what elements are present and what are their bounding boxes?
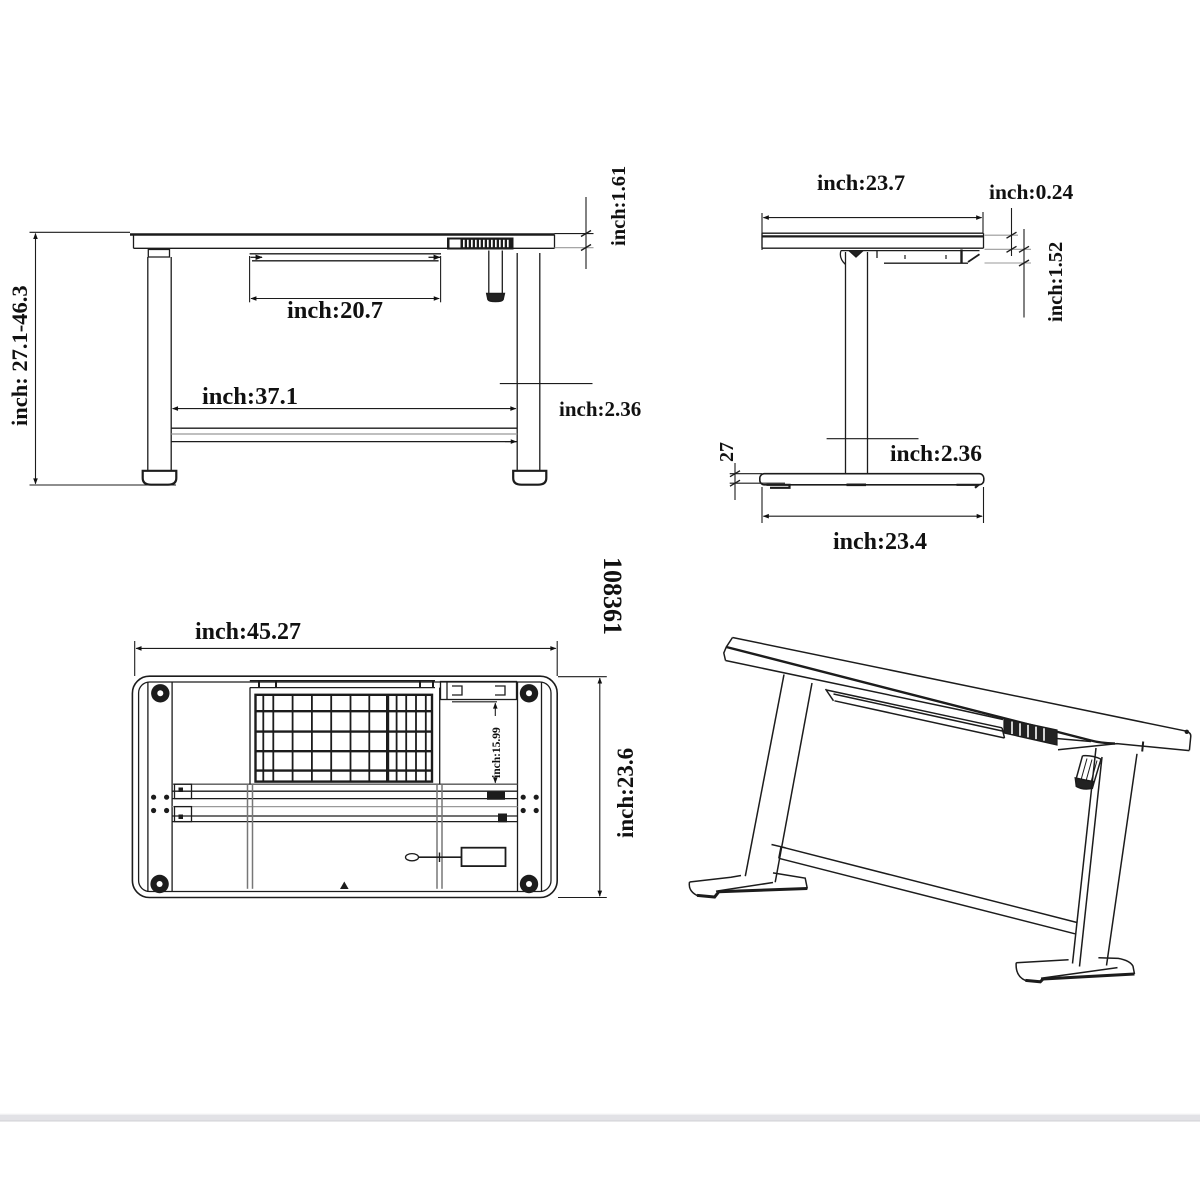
- svg-text:inch:20.7: inch:20.7: [287, 297, 383, 324]
- svg-text:inch:15.99: inch:15.99: [491, 727, 503, 778]
- svg-text:inch:23.6: inch:23.6: [613, 748, 638, 838]
- svg-text:inch:0.24: inch:0.24: [989, 180, 1073, 204]
- svg-text:27: 27: [716, 442, 738, 462]
- svg-text:inch:23.4: inch:23.4: [833, 529, 927, 555]
- svg-text:inch:2.36: inch:2.36: [559, 397, 641, 421]
- svg-text:inch: 27.1-46.3: inch: 27.1-46.3: [7, 285, 32, 426]
- svg-text:inch:1.52: inch:1.52: [1045, 242, 1067, 322]
- svg-text:inch:37.1: inch:37.1: [202, 383, 298, 410]
- svg-text:inch:45.27: inch:45.27: [195, 619, 301, 645]
- svg-text:inch:1.61: inch:1.61: [608, 166, 630, 246]
- svg-text:108361: 108361: [598, 557, 627, 635]
- svg-text:inch:23.7: inch:23.7: [817, 170, 905, 195]
- svg-text:inch:2.36: inch:2.36: [890, 441, 982, 467]
